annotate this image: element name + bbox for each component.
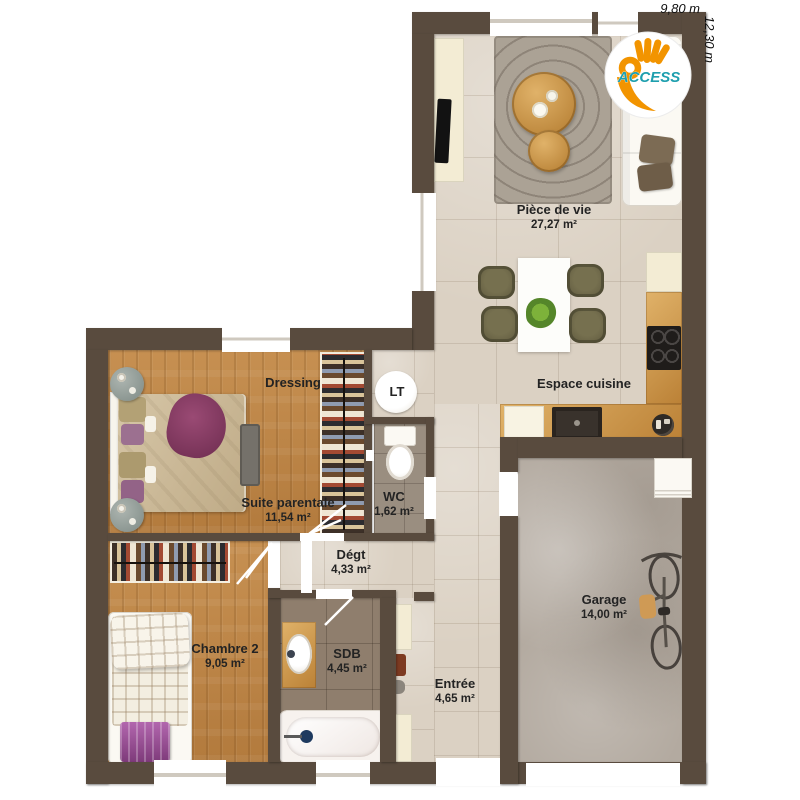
bathtub-faucet-stem [284, 735, 302, 738]
room-area: 11,54 m² [241, 511, 334, 525]
room-name: Chambre 2 [191, 641, 258, 657]
wardrobe-rail [343, 358, 345, 531]
room-name: Dressing [265, 375, 321, 391]
wall-segment [108, 533, 300, 541]
logo-brand-text: ACCESS [617, 69, 681, 86]
wall-west [86, 350, 108, 784]
kitchen-cabinet-lower [504, 406, 544, 440]
window-living-north [490, 6, 592, 36]
wall-garage-north [518, 437, 682, 458]
wc-door [424, 477, 436, 519]
access-logo-graphic: ACCESS [604, 31, 692, 119]
dining-chair [567, 264, 604, 297]
bed-pillow-small [145, 466, 156, 483]
bed-pillow [121, 424, 144, 445]
wall-garage-west [500, 516, 518, 784]
dining-chair [569, 308, 606, 343]
wc-wall-fixture [366, 450, 374, 461]
wall-living-west [412, 34, 434, 350]
coffee-table-large [512, 72, 576, 136]
wall-segment [364, 350, 372, 533]
floor-plan: ACCESS Pièce de vie 27,27 m² Espace cuis… [0, 0, 800, 800]
kitchen-sink [552, 407, 602, 440]
dimension-width: 9,80 m [640, 1, 700, 16]
freezer [654, 458, 692, 498]
room-label-suite-parentale: Suite parentale 11,54 m² [241, 495, 334, 525]
garage-door [526, 763, 680, 786]
sofa-pillow [637, 162, 674, 192]
nightstand [110, 367, 144, 401]
bed-pillow [119, 452, 146, 478]
candle [546, 90, 558, 102]
room-label-garage: Garage 14,00 m² [581, 592, 627, 622]
wall-segment [344, 533, 434, 541]
wall-segment [268, 588, 280, 762]
bicycle-bag [639, 594, 657, 619]
chambre2-wardrobe [112, 543, 228, 581]
table-plant [526, 298, 558, 330]
toilet-tank [384, 426, 416, 446]
sdb-door-opening [316, 589, 352, 599]
cooktop [647, 326, 681, 370]
kitchen-cabinet-upper [646, 252, 682, 292]
room-area: 14,00 m² [581, 608, 627, 622]
room-area: 9,05 m² [191, 657, 258, 671]
dining-chair [481, 306, 518, 342]
window-living-west [408, 193, 436, 291]
coffee-cup [664, 419, 670, 424]
wall-segment [426, 417, 434, 477]
coffee-table-small [528, 130, 570, 172]
room-name: Pièce de vie [517, 202, 591, 218]
room-label-espace-cuisine: Espace cuisine [537, 376, 631, 392]
window-suite-north [222, 326, 290, 352]
wardrobe-rail [114, 562, 225, 564]
bed-bench [240, 424, 260, 486]
sink-faucet [574, 420, 580, 426]
room-label-wc: WC 1,62 m² [374, 489, 414, 519]
room-area: 1,62 m² [374, 505, 414, 519]
dimension-height: 12,30 m [702, 16, 717, 63]
toilet-bowl [386, 444, 414, 480]
wall-segment [414, 592, 434, 601]
room-label-entree: Entrée 4,65 m² [435, 676, 475, 706]
bed-pillow [119, 397, 146, 422]
room-area: 4,45 m² [327, 662, 367, 676]
wall-segment [364, 417, 434, 424]
room-name: SDB [327, 646, 367, 662]
bed-pillow-small [145, 416, 156, 432]
room-name: Suite parentale [241, 495, 334, 511]
wall-segment [352, 590, 396, 598]
single-bed-pillow [110, 612, 191, 670]
room-name: Entrée [435, 676, 475, 692]
garage-access-door [499, 472, 517, 516]
sofa-pillow [638, 134, 676, 166]
nightstand [110, 498, 144, 532]
room-area: 27,27 m² [517, 218, 591, 232]
room-label-lt: LT [390, 384, 405, 400]
wall-segment [380, 598, 396, 762]
wall-east [682, 12, 706, 784]
entree-front-door [436, 758, 500, 786]
room-label-chambre-2: Chambre 2 9,05 m² [191, 641, 258, 671]
room-label-piece-de-vie: Pièce de vie 27,27 m² [517, 202, 591, 232]
suite-door-leaf [301, 539, 312, 593]
candle [532, 102, 548, 118]
room-area: 4,65 m² [435, 692, 475, 706]
window-chambre2-south [154, 760, 226, 790]
room-label-degt: Dégt 4,33 m² [331, 547, 371, 577]
bathtub [278, 710, 388, 764]
coffee-machine [652, 414, 674, 436]
wall-garage-west [500, 437, 518, 472]
room-label-sdb: SDB 4,45 m² [327, 646, 367, 676]
room-name: WC [374, 489, 414, 505]
coffee-cup [656, 420, 661, 429]
bicycle-seat [658, 607, 671, 616]
room-name: Dégt [331, 547, 371, 563]
room-name: Espace cuisine [537, 376, 631, 392]
sdb-faucet [287, 650, 295, 658]
room-label-dressing: Dressing [265, 375, 321, 391]
dining-chair [478, 266, 515, 299]
access-logo: ACCESS [604, 31, 692, 119]
window-sdb-south [316, 760, 370, 790]
room-name: Garage [581, 592, 627, 608]
room-name: LT [390, 384, 405, 400]
floor-corridor [434, 404, 500, 762]
room-area: 4,33 m² [331, 563, 371, 577]
purple-blanket-chest [120, 722, 170, 762]
